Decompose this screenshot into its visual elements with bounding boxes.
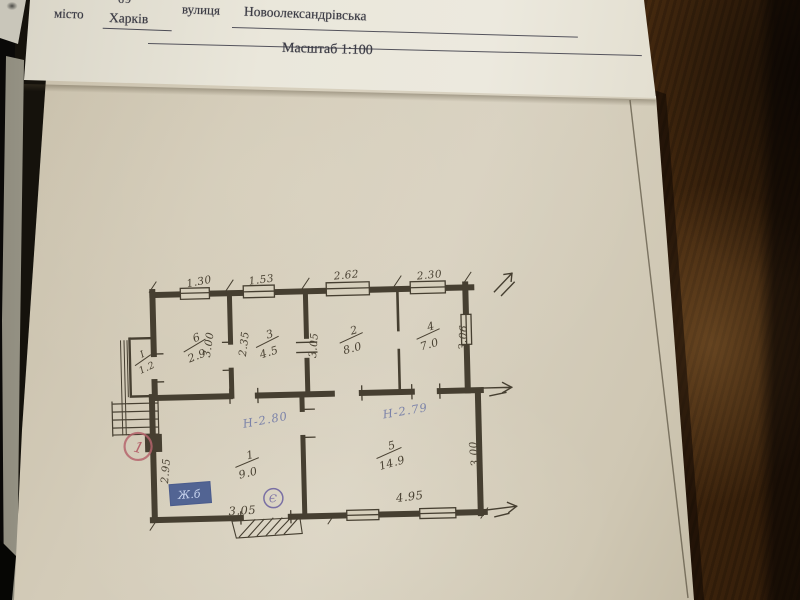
dim-top-room4: 2.30 xyxy=(415,268,442,282)
room-label-2: 2 8.0 xyxy=(336,322,367,357)
svg-text:4.5: 4.5 xyxy=(257,343,280,361)
svg-text:7.0: 7.0 xyxy=(419,336,441,354)
dim-vert-room3: 2.35 xyxy=(237,331,252,359)
sheet-border-line xyxy=(630,100,688,598)
wall-left-upper xyxy=(152,292,155,397)
svg-text:1: 1 xyxy=(132,438,146,458)
axis-arrow-top-right-icon xyxy=(494,273,515,295)
wall-middle xyxy=(152,390,481,398)
dim-bottom-room1: 3.05 xyxy=(228,503,256,519)
wall-int-room1-room5 xyxy=(302,397,305,516)
svg-text:8.0: 8.0 xyxy=(342,340,364,358)
svg-text:4: 4 xyxy=(425,319,437,334)
wall-left-lower xyxy=(152,397,155,520)
floor-plan-svg: 1.30 1.53 2.62 2.30 3.00 2.35 3.05 3.06 … xyxy=(0,0,800,600)
dim-vert-room2: 3.05 xyxy=(307,332,321,358)
height-note-room1: Н-2.80 xyxy=(241,409,289,431)
svg-text:3: 3 xyxy=(264,327,275,342)
room-label-3: 3 4.5 xyxy=(252,326,284,362)
axis-arrow-bottom-right-icon xyxy=(487,502,517,517)
svg-text:9.0: 9.0 xyxy=(237,465,258,482)
entrance-steps xyxy=(232,517,302,538)
dim-vert-room1: 2.95 xyxy=(159,458,173,485)
wall-int-room2-room4 xyxy=(397,289,400,392)
inventory-stamp: Ж.б xyxy=(169,482,211,506)
dim-vert-room5: 3.00 xyxy=(467,441,481,467)
height-note-room5: Н-2.79 xyxy=(381,400,429,421)
dim-top-room2: 2.62 xyxy=(332,268,359,282)
svg-text:6: 6 xyxy=(191,330,203,345)
dim-vert-room4: 3.06 xyxy=(457,325,470,351)
svg-text:Ж.б: Ж.б xyxy=(176,487,201,502)
dim-bottom-room5: 4.95 xyxy=(394,488,424,506)
room-label-1: 1 9.0 xyxy=(232,447,262,482)
svg-text:I: I xyxy=(137,349,146,361)
room-label-4: 4 7.0 xyxy=(413,318,444,353)
svg-text:2: 2 xyxy=(348,323,360,338)
floor-plan: 1.30 1.53 2.62 2.30 3.00 2.35 3.05 3.06 … xyxy=(109,264,520,541)
svg-text:Є: Є xyxy=(269,493,277,505)
axis-arrow-mid-right-icon xyxy=(482,382,512,396)
circled-symbol: Є xyxy=(264,488,283,507)
room-label-5: 5 14.9 xyxy=(373,437,407,473)
wall-int-room6-room3 xyxy=(229,293,232,396)
window-openings xyxy=(180,279,476,524)
photo-of-floor-plan-document: 69 місто Харків вулиця Новоолександрівсь… xyxy=(0,0,800,600)
